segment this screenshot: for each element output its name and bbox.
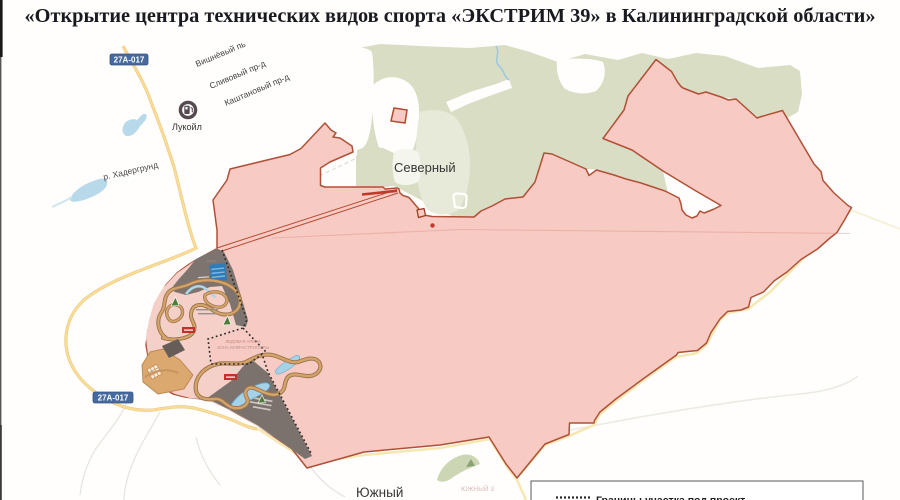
svg-text:Лукойл: Лукойл	[172, 122, 202, 132]
svg-text:Северный: Северный	[394, 160, 456, 175]
svg-text:27А-017: 27А-017	[114, 56, 145, 65]
svg-text:Границы участка под проект: Границы участка под проект	[596, 495, 745, 500]
svg-text:«Открытие центра технических в: «Открытие центра технических видов спорт…	[25, 5, 876, 27]
svg-text:ЛЕДОВАЯ АРЕНА: ЛЕДОВАЯ АРЕНА	[225, 339, 261, 344]
svg-text:ЗОНА ИНФРАСТРУКТУРЫ: ЗОНА ИНФРАСТРУКТУРЫ	[217, 345, 269, 350]
svg-text:Южный: Южный	[356, 485, 403, 500]
svg-text:ЮЖНЫЙ 3: ЮЖНЫЙ 3	[461, 484, 494, 493]
svg-text:27А-017: 27А-017	[98, 394, 129, 403]
